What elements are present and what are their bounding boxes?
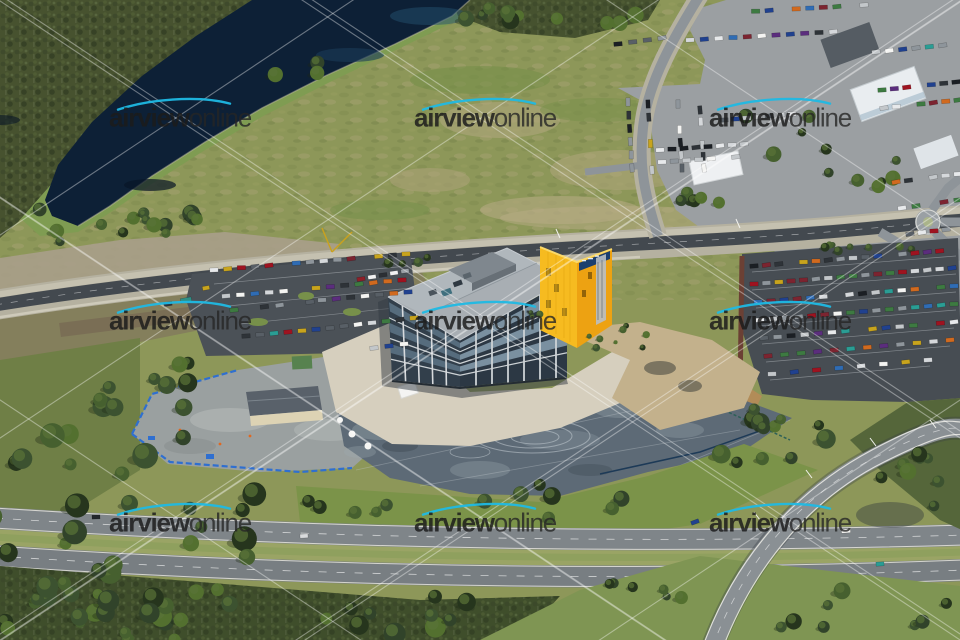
tree-highlight bbox=[607, 503, 614, 510]
tree-highlight bbox=[624, 323, 627, 326]
parked-car bbox=[828, 330, 837, 335]
parked-car bbox=[768, 372, 777, 376]
parked-car bbox=[775, 280, 784, 285]
parked-car bbox=[835, 366, 844, 371]
parked-car bbox=[646, 100, 651, 109]
tree-highlight bbox=[184, 536, 193, 545]
tree-highlight bbox=[128, 213, 135, 220]
parked-car bbox=[340, 283, 349, 288]
tree-highlight bbox=[606, 580, 611, 585]
parked-car bbox=[898, 251, 907, 256]
tree-highlight bbox=[460, 12, 469, 21]
parked-car bbox=[704, 144, 713, 149]
tree-highlight bbox=[141, 604, 152, 615]
tree-highlight bbox=[72, 610, 82, 620]
tree-highlight bbox=[1, 545, 11, 555]
parked-car bbox=[858, 291, 867, 296]
parked-car bbox=[326, 326, 335, 331]
tree-highlight bbox=[175, 614, 183, 622]
tree-highlight bbox=[552, 13, 559, 20]
parked-car bbox=[346, 295, 355, 300]
tree-highlight bbox=[119, 228, 125, 234]
tree-highlight bbox=[116, 468, 124, 476]
parked-car bbox=[790, 369, 799, 374]
parked-car bbox=[910, 250, 919, 255]
tree-highlight bbox=[853, 175, 860, 182]
tree-highlight bbox=[544, 513, 551, 520]
parked-car bbox=[698, 106, 703, 115]
parked-car bbox=[680, 146, 689, 151]
parked-car bbox=[890, 86, 899, 91]
parked-car bbox=[614, 42, 623, 47]
parked-car bbox=[892, 104, 901, 109]
tree-highlight bbox=[234, 528, 248, 542]
tree-highlight bbox=[162, 229, 167, 234]
tree-highlight bbox=[877, 472, 884, 479]
tree-highlight bbox=[459, 594, 469, 604]
parked-car bbox=[819, 5, 828, 10]
parked-car bbox=[757, 33, 766, 38]
tree-highlight bbox=[714, 198, 721, 205]
parked-car bbox=[793, 296, 802, 301]
parked-car bbox=[656, 148, 665, 153]
tree-highlight bbox=[212, 584, 219, 591]
aerial-photo-scene bbox=[0, 0, 960, 640]
vehicle bbox=[390, 270, 398, 275]
tree-highlight bbox=[825, 168, 830, 173]
parked-car bbox=[765, 8, 774, 13]
tree-highlight bbox=[142, 216, 147, 221]
tree-highlight bbox=[696, 193, 703, 200]
tree-highlight bbox=[602, 17, 610, 25]
parked-car bbox=[896, 342, 905, 347]
parked-car bbox=[628, 137, 633, 146]
parked-car bbox=[692, 145, 701, 150]
parked-car bbox=[223, 266, 232, 271]
tree-highlight bbox=[145, 589, 157, 601]
vehicle bbox=[876, 562, 884, 567]
parked-car bbox=[250, 291, 259, 296]
parked-car bbox=[861, 272, 870, 277]
parked-car bbox=[765, 114, 773, 118]
parked-car bbox=[312, 286, 321, 291]
vehicle bbox=[357, 276, 365, 281]
tree-highlight bbox=[312, 57, 320, 65]
tree-highlight bbox=[786, 453, 793, 460]
parked-car bbox=[750, 264, 759, 269]
parked-car bbox=[404, 290, 413, 295]
tree-highlight bbox=[150, 374, 157, 381]
tree-highlight bbox=[640, 345, 643, 348]
tree-highlight bbox=[190, 585, 199, 594]
tree-highlight bbox=[893, 157, 898, 162]
parked-car bbox=[913, 341, 922, 346]
tree-highlight bbox=[615, 492, 624, 501]
parked-car bbox=[927, 82, 936, 87]
tree-highlight bbox=[314, 501, 322, 509]
tree-highlight bbox=[732, 458, 738, 464]
tree-highlight bbox=[942, 599, 948, 605]
tree-highlight bbox=[382, 500, 389, 507]
parked-car bbox=[389, 291, 398, 296]
parked-car bbox=[292, 261, 301, 266]
parked-car bbox=[383, 279, 392, 283]
parked-car bbox=[846, 310, 855, 315]
parked-car bbox=[806, 6, 814, 10]
parked-car bbox=[370, 345, 379, 350]
vehicle bbox=[841, 529, 850, 534]
parked-car bbox=[950, 302, 958, 306]
parked-car bbox=[799, 260, 807, 264]
parked-car bbox=[836, 256, 845, 261]
parked-car bbox=[898, 306, 907, 311]
parked-car bbox=[948, 265, 957, 270]
parked-car bbox=[729, 35, 737, 39]
parked-car bbox=[306, 299, 315, 304]
tree-highlight bbox=[787, 615, 796, 624]
parked-car bbox=[952, 79, 960, 84]
parked-car bbox=[402, 252, 411, 256]
parked-car bbox=[743, 34, 752, 39]
tree-highlight bbox=[750, 404, 756, 410]
parked-car bbox=[318, 298, 327, 303]
tree-highlight bbox=[180, 375, 191, 386]
parked-car bbox=[925, 44, 934, 49]
parked-car bbox=[935, 267, 944, 272]
tree-highlight bbox=[424, 254, 428, 258]
parked-car bbox=[264, 263, 273, 268]
parked-car bbox=[686, 38, 695, 43]
parked-car bbox=[871, 290, 880, 295]
tree-highlight bbox=[123, 496, 132, 505]
tree-highlight bbox=[350, 507, 357, 514]
parked-car bbox=[260, 304, 269, 309]
parked-car bbox=[751, 9, 759, 13]
tree-highlight bbox=[59, 578, 66, 585]
parked-car bbox=[754, 115, 763, 119]
parked-car bbox=[879, 343, 888, 348]
tree-highlight bbox=[682, 188, 689, 195]
parked-car bbox=[780, 352, 789, 357]
parked-car bbox=[237, 266, 245, 270]
parked-car bbox=[941, 173, 950, 178]
parked-car bbox=[762, 281, 771, 286]
tree-highlight bbox=[65, 521, 79, 535]
parked-car bbox=[731, 154, 740, 159]
tree-highlight bbox=[415, 258, 420, 263]
parked-car bbox=[829, 29, 838, 34]
tree-highlight bbox=[386, 624, 398, 636]
tree-highlight bbox=[677, 196, 683, 202]
parked-car bbox=[780, 297, 789, 302]
parked-car bbox=[347, 256, 356, 261]
parked-car bbox=[941, 99, 950, 104]
tree-highlight bbox=[94, 590, 100, 596]
tree-highlight bbox=[815, 421, 821, 427]
parked-car bbox=[626, 98, 630, 106]
parked-car bbox=[820, 312, 829, 317]
tree-highlight bbox=[835, 247, 840, 252]
parked-car bbox=[242, 334, 251, 339]
parked-car bbox=[643, 37, 652, 42]
vehicle bbox=[300, 534, 308, 538]
parked-car bbox=[658, 160, 667, 165]
parked-car bbox=[787, 279, 796, 283]
tree-highlight bbox=[819, 622, 826, 629]
tree-highlight bbox=[351, 617, 362, 628]
vehicle bbox=[379, 272, 387, 277]
parked-car bbox=[815, 30, 824, 34]
parked-car bbox=[716, 143, 725, 148]
parked-car bbox=[833, 311, 842, 316]
tree-highlight bbox=[177, 400, 187, 410]
tree-highlight bbox=[107, 400, 117, 410]
tree-highlight bbox=[757, 453, 764, 460]
parked-car bbox=[884, 289, 893, 294]
parked-car bbox=[650, 166, 655, 175]
parked-car bbox=[648, 139, 652, 147]
tree-highlight bbox=[767, 148, 776, 157]
tree-highlight bbox=[529, 311, 532, 314]
parked-car bbox=[902, 85, 911, 90]
tree-highlight bbox=[445, 614, 452, 621]
parked-car bbox=[284, 330, 293, 335]
parked-car bbox=[898, 47, 907, 52]
parked-car bbox=[800, 31, 809, 36]
green-shed bbox=[292, 355, 313, 369]
tree-highlight bbox=[429, 591, 437, 599]
parked-car bbox=[700, 37, 709, 42]
tree-highlight bbox=[614, 341, 616, 343]
tree-highlight bbox=[777, 622, 783, 628]
parked-car bbox=[627, 124, 632, 133]
parked-car bbox=[355, 281, 364, 286]
tree-highlight bbox=[237, 504, 245, 512]
tree-highlight bbox=[777, 415, 783, 421]
parked-car bbox=[874, 272, 883, 276]
tree-highlight bbox=[140, 210, 145, 215]
tree-highlight bbox=[614, 17, 623, 26]
tree-highlight bbox=[620, 327, 624, 331]
parked-car bbox=[849, 256, 858, 260]
parked-car bbox=[807, 313, 816, 318]
parked-car bbox=[319, 258, 328, 263]
parked-car bbox=[792, 7, 801, 11]
parked-car bbox=[936, 321, 945, 326]
parked-car bbox=[924, 358, 933, 363]
parked-car bbox=[841, 329, 850, 334]
tree-highlight bbox=[847, 244, 851, 248]
parked-car bbox=[312, 327, 321, 332]
parked-car bbox=[904, 178, 913, 183]
tree-highlight bbox=[545, 488, 555, 498]
tree-highlight bbox=[365, 608, 372, 615]
tree-highlight bbox=[148, 218, 156, 226]
tree-highlight bbox=[917, 616, 925, 624]
parked-car bbox=[937, 285, 946, 290]
parked-car bbox=[824, 276, 833, 281]
parked-car bbox=[935, 249, 944, 254]
parked-car bbox=[375, 292, 384, 297]
parked-car bbox=[832, 4, 841, 9]
parked-car bbox=[895, 324, 904, 329]
parked-car bbox=[812, 259, 820, 263]
tree-highlight bbox=[660, 585, 665, 590]
parked-car bbox=[898, 270, 906, 274]
parked-car bbox=[627, 111, 631, 119]
tree-highlight bbox=[196, 522, 203, 529]
parked-car bbox=[670, 159, 679, 164]
parked-car bbox=[911, 305, 920, 310]
parked-car bbox=[929, 339, 938, 344]
parked-car bbox=[326, 284, 335, 289]
parked-car bbox=[210, 268, 219, 273]
parked-car bbox=[924, 304, 933, 309]
parked-car bbox=[846, 346, 855, 351]
tree-highlight bbox=[502, 6, 510, 14]
parked-car bbox=[230, 308, 239, 313]
parked-car bbox=[885, 307, 894, 312]
parked-car bbox=[668, 147, 676, 151]
parked-car bbox=[265, 290, 274, 294]
tree-highlight bbox=[930, 501, 936, 507]
parked-car bbox=[270, 331, 279, 336]
parked-car bbox=[385, 343, 394, 348]
tree-highlight bbox=[160, 377, 170, 387]
parked-car bbox=[400, 342, 409, 347]
tree-highlight bbox=[245, 484, 258, 497]
parked-car bbox=[939, 81, 948, 86]
parked-car bbox=[879, 362, 888, 366]
tree-highlight bbox=[484, 3, 491, 10]
tree-highlight bbox=[676, 592, 683, 599]
tree-highlight bbox=[223, 597, 232, 606]
tree-highlight bbox=[67, 495, 80, 508]
parked-car bbox=[946, 338, 955, 343]
parked-car bbox=[236, 293, 245, 298]
tree-highlight bbox=[758, 422, 765, 429]
parked-car bbox=[863, 345, 872, 350]
parked-car bbox=[911, 269, 920, 274]
parked-car bbox=[398, 278, 407, 282]
parked-car bbox=[695, 157, 703, 161]
parked-car bbox=[279, 289, 288, 294]
aerial-photo-stage: airviewonlineairviewonlineairviewonlinea… bbox=[0, 0, 960, 640]
parked-car bbox=[930, 229, 939, 234]
tree-highlight bbox=[38, 578, 50, 590]
parked-car bbox=[897, 288, 906, 293]
parked-car bbox=[714, 36, 723, 41]
tree-highlight bbox=[629, 583, 635, 589]
parked-car bbox=[382, 319, 391, 324]
tree-highlight bbox=[479, 495, 487, 503]
tree-highlight bbox=[933, 476, 940, 483]
parked-car bbox=[787, 333, 796, 338]
parked-car bbox=[773, 335, 782, 340]
tree-highlight bbox=[597, 336, 601, 340]
parked-car bbox=[872, 308, 881, 313]
parked-car bbox=[901, 359, 910, 364]
tree-highlight bbox=[913, 448, 922, 457]
parked-car bbox=[333, 258, 341, 262]
parked-car bbox=[630, 164, 635, 173]
tree-highlight bbox=[818, 431, 829, 442]
parked-car bbox=[682, 158, 691, 163]
vehicle bbox=[368, 274, 376, 279]
parked-car bbox=[306, 259, 315, 264]
parked-car bbox=[799, 278, 808, 283]
tree-highlight bbox=[95, 394, 103, 402]
tree-highlight bbox=[426, 610, 433, 617]
parked-car bbox=[872, 49, 881, 54]
parked-car bbox=[646, 113, 651, 122]
tree-highlight bbox=[97, 220, 103, 226]
tree-highlight bbox=[121, 628, 127, 634]
parked-car bbox=[677, 125, 681, 133]
parked-car bbox=[954, 172, 960, 177]
tree-highlight bbox=[537, 311, 541, 315]
parked-car bbox=[912, 45, 921, 50]
tree-highlight bbox=[804, 111, 811, 118]
tree-highlight bbox=[100, 591, 112, 603]
parked-car bbox=[767, 299, 776, 303]
parked-car bbox=[680, 164, 684, 172]
parked-car bbox=[742, 116, 751, 120]
parked-car bbox=[910, 287, 919, 292]
tree-highlight bbox=[835, 584, 844, 593]
tree-highlight bbox=[173, 358, 182, 367]
tree-highlight bbox=[901, 464, 910, 473]
parked-car bbox=[256, 332, 265, 337]
tree-highlight bbox=[908, 246, 912, 250]
parked-car bbox=[222, 294, 231, 299]
tree-highlight bbox=[303, 496, 310, 503]
parked-car bbox=[678, 138, 683, 147]
tree-highlight bbox=[269, 68, 277, 76]
parked-car bbox=[628, 39, 637, 44]
tree-highlight bbox=[887, 172, 895, 180]
parked-car bbox=[720, 118, 729, 122]
parked-car bbox=[774, 261, 783, 266]
parked-car bbox=[950, 319, 959, 324]
parked-car bbox=[937, 302, 946, 307]
tree-highlight bbox=[177, 431, 185, 439]
parked-car bbox=[361, 294, 370, 299]
tree-highlight bbox=[135, 445, 149, 459]
tree-highlight bbox=[587, 334, 590, 337]
parked-car bbox=[756, 318, 765, 323]
tree-highlight bbox=[14, 450, 25, 461]
parked-car bbox=[410, 316, 419, 321]
parked-car bbox=[699, 117, 704, 126]
parked-car bbox=[764, 354, 773, 359]
parked-car bbox=[676, 100, 680, 108]
parked-car bbox=[886, 271, 895, 275]
tree-highlight bbox=[311, 67, 319, 75]
parked-car bbox=[909, 323, 918, 328]
tree-highlight bbox=[66, 459, 73, 466]
parked-car bbox=[731, 117, 740, 122]
parked-car bbox=[786, 32, 795, 37]
parked-car bbox=[812, 368, 821, 373]
parked-car bbox=[368, 320, 377, 325]
parked-car bbox=[772, 33, 781, 38]
tree-highlight bbox=[824, 601, 830, 607]
tree-highlight bbox=[372, 507, 378, 513]
tree-highlight bbox=[643, 332, 647, 336]
parked-car bbox=[950, 284, 959, 288]
parked-car bbox=[750, 282, 758, 286]
